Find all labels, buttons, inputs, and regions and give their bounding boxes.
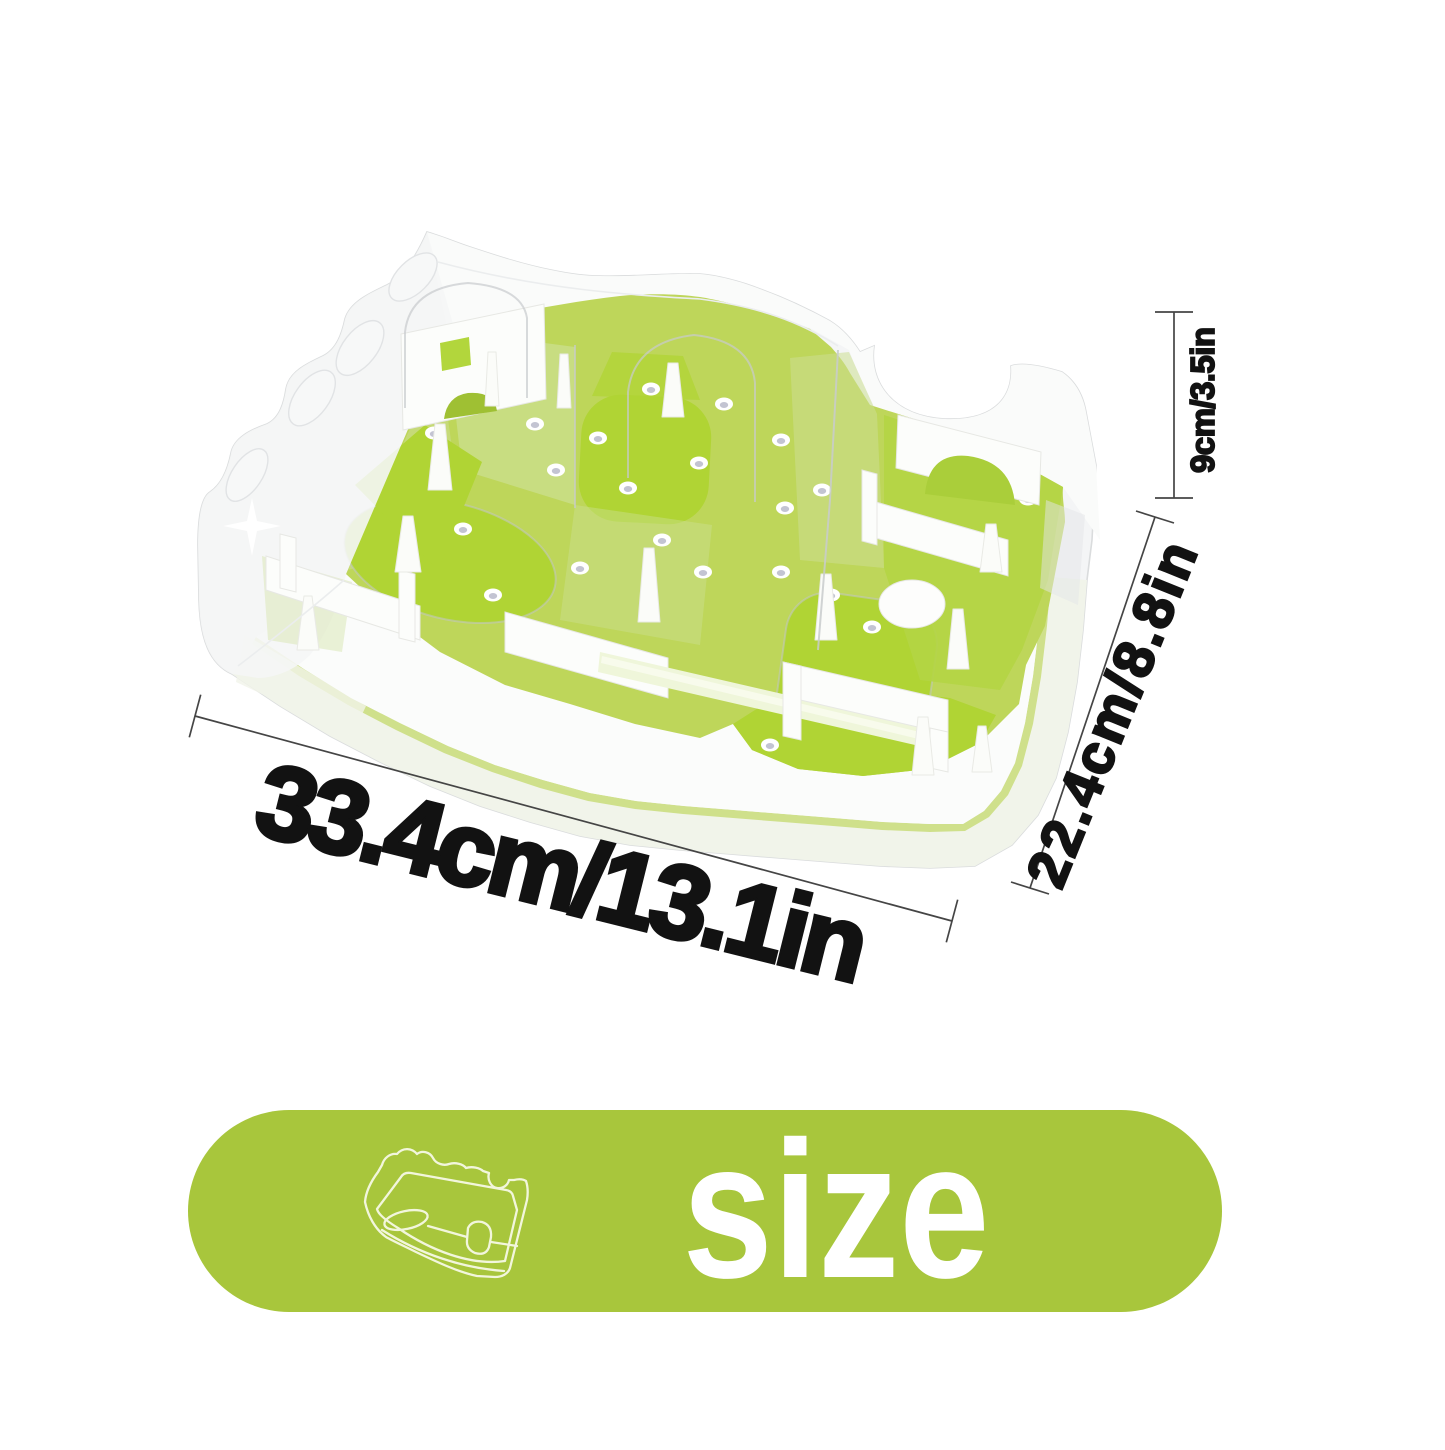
svg-text:9cm/3.5in: 9cm/3.5in	[1184, 327, 1221, 473]
svg-text:size: size	[683, 1101, 990, 1319]
